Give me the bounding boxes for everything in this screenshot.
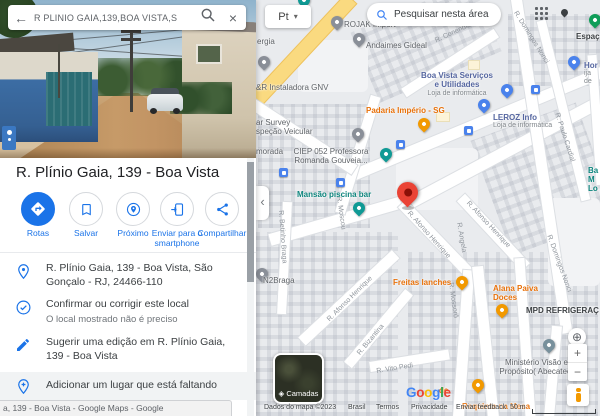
- sv-white-car: [147, 88, 183, 114]
- save-button[interactable]: Salvar: [60, 192, 112, 239]
- nearby-icon: [116, 192, 150, 226]
- share-icon: [205, 192, 239, 226]
- street-label: R. Angela: [455, 222, 467, 253]
- action-label: Salvar: [60, 229, 112, 239]
- poi-label-instaladora[interactable]: &R Instaladora GNV: [256, 83, 328, 92]
- address-row[interactable]: R. Plínio Gaia, 139 - Boa Vista, São Gon…: [0, 262, 256, 289]
- poi-label-andaimes[interactable]: Andaimes Gideal: [366, 41, 427, 50]
- service-square-icon[interactable]: [464, 126, 473, 135]
- directions-button[interactable]: Rotas: [12, 192, 64, 239]
- poi-label-freitas[interactable]: Freitas lanches: [393, 278, 451, 287]
- poi-label-n2braga[interactable]: N2Braga: [263, 276, 295, 285]
- confirm-subtext: O local mostrado não é preciso: [46, 314, 242, 326]
- confirm-text: Confirmar ou corrigir este local: [46, 298, 189, 310]
- layers-icon: ◈: [279, 389, 285, 398]
- search-icon[interactable]: [196, 7, 220, 28]
- directions-icon: [21, 192, 55, 226]
- pencil-icon: [0, 336, 46, 363]
- map-pin-icon: [0, 262, 46, 289]
- search-this-area-button[interactable]: Pesquisar nesta área: [367, 3, 501, 26]
- browser-status-bar: a, 139 - Boa Vista - Google Maps - Googl…: [0, 400, 232, 416]
- street-view-pegman-icon[interactable]: [2, 126, 16, 150]
- bookmark-icon: [69, 192, 103, 226]
- service-square-icon[interactable]: [336, 178, 345, 187]
- google-logo: Google: [406, 385, 451, 400]
- action-label: Compartilhar: [196, 229, 248, 239]
- poi-label-hor[interactable]: Hor ija de: [584, 52, 600, 96]
- poi-label-sub: Loja de informática: [414, 90, 500, 98]
- zoom-out-button[interactable]: −: [568, 363, 587, 381]
- google-logo-letter: o: [424, 385, 432, 400]
- scale-bar: [532, 409, 596, 414]
- pegman-icon: [574, 388, 582, 403]
- attribution-country: Brasil: [348, 404, 366, 411]
- share-button[interactable]: Compartilhar: [196, 192, 248, 239]
- chevron-down-icon: ▾: [294, 12, 298, 21]
- poi-label-fragment: ergia: [257, 37, 275, 46]
- poi-label-ciep[interactable]: CIEP 052 Professora Romanda Gouveia...: [286, 147, 376, 165]
- address-text: R. Plínio Gaia, 139 - Boa Vista, São Gon…: [46, 262, 256, 289]
- sv-shadow: [0, 148, 256, 158]
- poi-label-text: Boa Vista Serviços e Utilidades: [421, 71, 493, 89]
- zoom-in-button[interactable]: +: [568, 344, 587, 362]
- confirm-location-text: Confirmar ou corrigir este local O local…: [46, 298, 256, 326]
- sv-pole-crossarm: [121, 38, 141, 41]
- google-logo-letter: e: [444, 385, 451, 400]
- poi-pin-padaria[interactable]: [416, 116, 433, 133]
- sv-gate: [46, 72, 92, 126]
- send-to-phone-icon: [160, 192, 194, 226]
- scale-label: 50 m: [510, 404, 526, 411]
- search-bar: ← R PLINIO GAIA,139,BOA VISTA,S ×: [8, 5, 246, 30]
- google-logo-letter: G: [406, 385, 416, 400]
- poi-label-mpd[interactable]: MPD REFRIGERAÇ: [526, 306, 600, 315]
- service-square-icon[interactable]: [279, 168, 288, 177]
- poi-label-padaria[interactable]: Padaria Império - SG: [366, 106, 445, 115]
- poi-label-alana[interactable]: Alana Paiva Doces: [493, 284, 538, 302]
- pegman-button[interactable]: [567, 384, 589, 406]
- add-missing-place-text: Adicionar um lugar que está faltando: [46, 379, 256, 393]
- language-chip-label: Pt: [278, 11, 288, 23]
- poi-pin-instaladora[interactable]: [256, 54, 272, 71]
- poi-label-boa-vista[interactable]: Boa Vista Serviços e Utilidades Loja de …: [414, 62, 500, 107]
- layers-button[interactable]: ◈Camadas: [273, 353, 324, 404]
- action-label: Rotas: [12, 229, 64, 239]
- divider: [0, 252, 256, 253]
- poi-label-espaco[interactable]: Espaç: [576, 32, 600, 41]
- place-panel: ← R PLINIO GAIA,139,BOA VISTA,S × R. Plí…: [0, 0, 256, 416]
- search-icon: [376, 9, 388, 21]
- google-logo-letter: g: [432, 385, 440, 400]
- send-feedback-link[interactable]: Enviar feedback: [456, 404, 506, 411]
- poi-label-mansao[interactable]: Mansão piscina bar: [297, 190, 371, 199]
- sv-pole-crossarm: [121, 30, 141, 33]
- confirm-location-row[interactable]: Confirmar ou corrigir este local O local…: [0, 298, 256, 326]
- service-square-icon[interactable]: [396, 140, 405, 149]
- layers-label: Camadas: [286, 389, 318, 398]
- zoom-controls: + −: [568, 344, 587, 381]
- add-place-icon: [0, 377, 46, 395]
- collapse-panel-button[interactable]: ‹: [256, 186, 269, 220]
- panel-scrollbar-thumb[interactable]: [247, 162, 254, 282]
- search-input[interactable]: R PLINIO GAIA,139,BOA VISTA,S: [34, 13, 196, 23]
- poi-label-fragment: morada: [256, 147, 283, 156]
- sv-window: [196, 44, 222, 64]
- suggest-edit-text: Sugerir uma edição em R. Plínio Gaia, 13…: [46, 336, 256, 363]
- place-title: R. Plínio Gaia, 139 - Boa Vista: [16, 164, 246, 181]
- apps-grid-icon[interactable]: [535, 7, 548, 20]
- back-arrow-icon[interactable]: ←: [8, 10, 34, 26]
- service-square-icon[interactable]: [531, 85, 540, 94]
- poi-label-sub: Loja de informática: [493, 122, 552, 130]
- terms-link[interactable]: Termos: [376, 404, 399, 411]
- attribution-copyright: Dados do mapa ©2023: [264, 404, 336, 411]
- action-buttons-row: Rotas Salvar Próximo Enviar para o smart…: [0, 192, 256, 248]
- map-canvas[interactable]: R. Conendia R. Domingos Nonci R. Paulo C…: [256, 0, 600, 416]
- poi-label-survey[interactable]: ar Survey speção Veicular: [256, 118, 312, 136]
- add-missing-place-row[interactable]: Adicionar um lugar que está faltando: [0, 372, 256, 400]
- suggest-edit-row[interactable]: Sugerir uma edição em R. Plínio Gaia, 13…: [0, 336, 256, 363]
- privacy-link[interactable]: Privacidade: [411, 404, 448, 411]
- google-maps-window: ← R PLINIO GAIA,139,BOA VISTA,S × R. Plí…: [0, 0, 600, 416]
- poi-label-fragment: Ba M Lo: [588, 166, 598, 194]
- google-logo-letter: o: [416, 385, 424, 400]
- poi-label-text: Hor: [584, 61, 598, 70]
- language-chip[interactable]: Pt▾: [265, 5, 311, 28]
- close-icon[interactable]: ×: [220, 10, 246, 26]
- poi-label-leroz[interactable]: LEROZ Info Loja de informática: [493, 104, 552, 140]
- check-badge-icon: [0, 298, 46, 326]
- sv-utility-pole: [58, 44, 60, 98]
- poi-label-text: LEROZ Info: [493, 113, 537, 122]
- poi-label-sub: ija de: [584, 70, 600, 86]
- search-this-area-label: Pesquisar nesta área: [394, 9, 489, 20]
